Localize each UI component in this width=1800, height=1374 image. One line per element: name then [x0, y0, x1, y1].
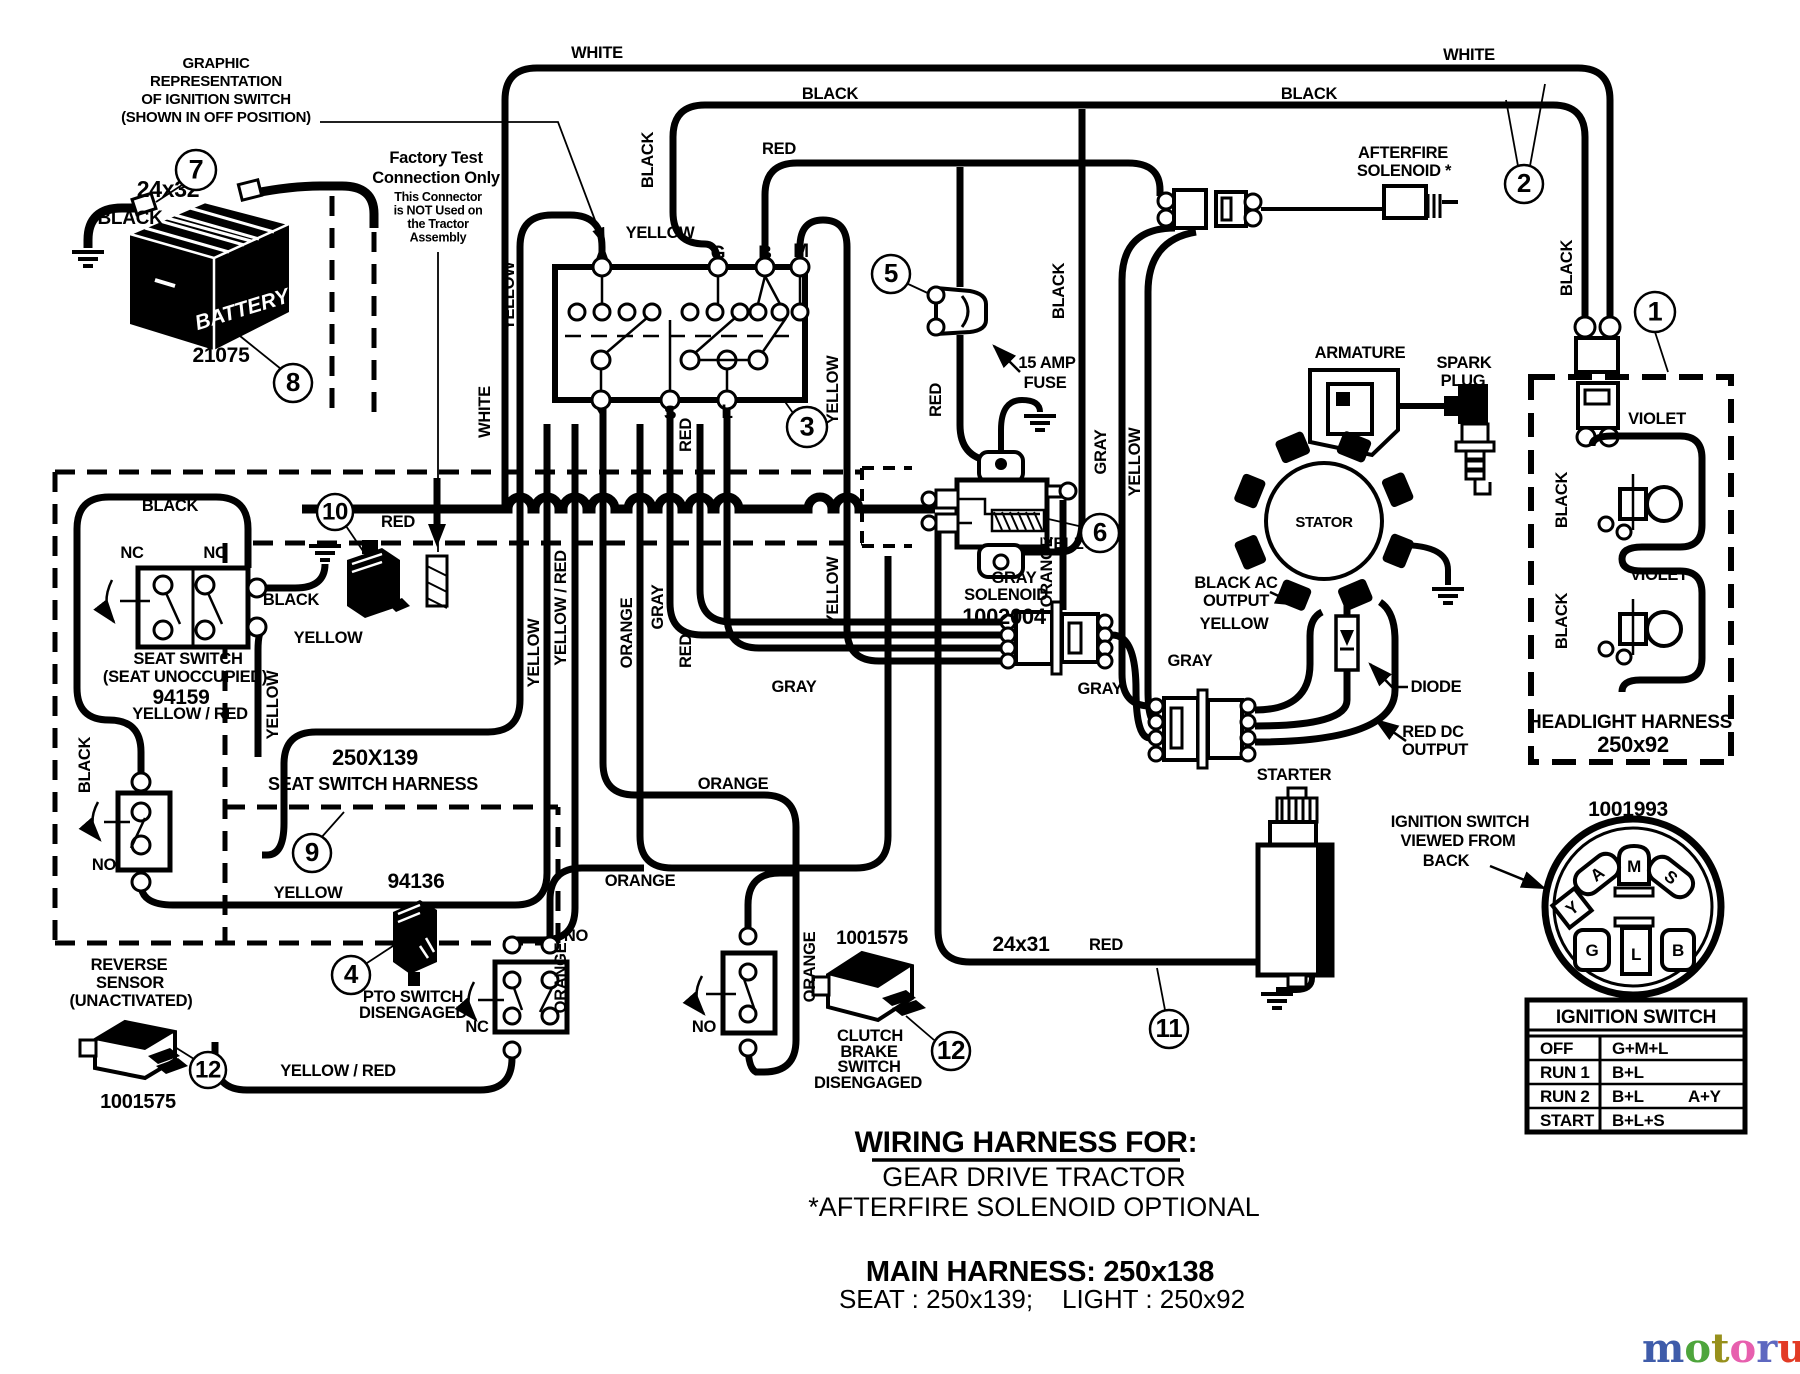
- graphic-rep-note: OF IGNITION SWITCH: [141, 91, 291, 108]
- seat-switch-shape: [196, 576, 214, 594]
- label-yellow-red: YELLOW / RED: [132, 705, 248, 723]
- callout4-pointer: [367, 944, 396, 963]
- factory-test-note: Connection Only: [372, 169, 501, 187]
- label-yellow: YELLOW: [294, 629, 364, 647]
- ignition-switch-schematic-shape: [682, 304, 698, 320]
- red-fuse-wire: [960, 335, 990, 461]
- callout1-pointer: [1655, 332, 1668, 372]
- fuse-arrow: [994, 346, 1020, 372]
- label-yellow: YELLOW: [525, 618, 543, 688]
- stator-shape-shape: [1276, 578, 1313, 611]
- label-starter: STARTER: [1257, 766, 1332, 784]
- ignition-switch-table: IGNITION SWITCH OFFG+M+LRUN 1B+LRUN 2B+L…: [1527, 1000, 1745, 1132]
- connector-b-shape: [1241, 715, 1255, 729]
- label-gray: GRAY: [1168, 652, 1213, 670]
- label-gray: GRAY: [1092, 429, 1110, 474]
- logo-motoruf-shape: o: [1730, 1325, 1757, 1372]
- clutch-brake-switch-shape: [740, 928, 756, 944]
- callout-8: 8: [274, 364, 312, 402]
- callout2-pointer: [1530, 84, 1545, 166]
- label-yellow: YELLOW: [1200, 615, 1270, 633]
- reverse-switch-shape: [132, 803, 150, 821]
- connector-b-shape: [1208, 700, 1242, 758]
- label-yellow: YELLOW: [824, 556, 842, 626]
- callout-2-shape: 2: [1517, 168, 1531, 198]
- callout-4: 4: [332, 956, 370, 994]
- starter-solenoid-shape: [936, 514, 958, 532]
- terminal-l: L: [1631, 945, 1641, 964]
- label-no: NO: [564, 927, 589, 945]
- headlight-harness: [1575, 317, 1702, 692]
- connector-a-shape: [1098, 654, 1112, 668]
- connector-b-shape: [1241, 747, 1255, 761]
- title-seat-light: SEAT : 250x139; LIGHT : 250x92: [839, 1284, 1245, 1314]
- pto-connector-cube-shape: [408, 972, 420, 986]
- yellow-wire: [262, 215, 602, 855]
- clutch-brake-switch: [696, 928, 775, 1056]
- clutch-brake-switch-shape: [696, 976, 704, 1014]
- stator-shape-shape: [1337, 578, 1374, 612]
- graphic-rep-note: (SHOWN IN OFF POSITION): [121, 109, 311, 126]
- headlight-harness-shape: [1585, 390, 1609, 404]
- logo-motoruf-shape: m: [1642, 1325, 1684, 1372]
- title-gear-drive: GEAR DRIVE TRACTOR: [882, 1162, 1186, 1192]
- logo-motoruf-shape: t: [1711, 1325, 1730, 1372]
- battery: BATTERY: [130, 180, 294, 350]
- label-nc: NC: [465, 1018, 489, 1036]
- pto-switch-shape: [504, 937, 520, 953]
- factory-test-connector: [427, 556, 447, 608]
- fuse-shape: [928, 287, 944, 303]
- label-seat-switch-harness: SEAT SWITCH HARNESS: [268, 774, 478, 794]
- starter-shape: [1270, 822, 1316, 845]
- ignition-switch-schematic-shape: [772, 304, 788, 320]
- ignition-switch-schematic-shape: [749, 351, 767, 369]
- connector-b-shape: [1171, 708, 1182, 748]
- table-terminals: B+L: [1612, 1063, 1644, 1082]
- afterfire-solenoid-shape: [1174, 190, 1206, 228]
- label-1001575: 1001575: [100, 1091, 176, 1113]
- label-s: S: [664, 403, 676, 424]
- starter-shape: [1288, 975, 1306, 987]
- seat-switch-shape: [154, 576, 172, 594]
- stator-shape-shape: [1233, 473, 1266, 510]
- label-red: RED: [677, 418, 695, 452]
- table-terminals: G+M+L: [1612, 1039, 1668, 1058]
- orange-clutch-wire: [748, 873, 796, 936]
- pto-switch-shape: [504, 972, 520, 988]
- label-yellow: YELLOW: [1126, 427, 1144, 497]
- label-yellow: YELLOW: [626, 224, 696, 242]
- wiring-diagram-page: BATTERY: [0, 0, 1800, 1374]
- label-black-ac: BLACK AC: [1194, 574, 1278, 592]
- callout-9-shape: 9: [305, 837, 319, 867]
- callout10-pointer: [346, 526, 363, 551]
- ignition-switch-back: M A S Y G L B: [1545, 819, 1721, 995]
- connector-a-shape: [1069, 623, 1081, 653]
- afterfire-solenoid-shape: [1158, 193, 1174, 209]
- callout-4-shape: 4: [344, 959, 359, 989]
- table-terminals-extra: A+Y: [1688, 1087, 1722, 1106]
- components-shape: [1024, 416, 1056, 430]
- seat-switch-shape: [154, 621, 172, 639]
- label-black: BLACK: [1553, 592, 1571, 649]
- callout-12: 12: [190, 1052, 226, 1088]
- factory-test-note: the Tractor: [407, 217, 469, 231]
- pto-switch-shape: [504, 1008, 520, 1024]
- table-terminals: B+L+S: [1612, 1111, 1664, 1130]
- label-250x92: 250x92: [1597, 732, 1669, 757]
- label-nc: NC: [203, 544, 227, 562]
- afterfire-solenoid: [1158, 186, 1458, 228]
- components: BATTERY: [72, 180, 1745, 1132]
- wiring-diagram-svg: BATTERY: [0, 0, 1800, 1374]
- reverse-switch-shape: [132, 873, 150, 891]
- spark-plug-shape: [1458, 384, 1488, 424]
- label-armature: ARMATURE: [1315, 344, 1406, 362]
- label-reverse: REVERSE: [91, 956, 168, 974]
- logo-motoruf-shape: o: [1684, 1325, 1711, 1372]
- callout-10: 10: [317, 494, 353, 530]
- factory-test-note: Factory Test: [389, 149, 483, 167]
- fuse-shape: [928, 319, 944, 335]
- label-orange: ORANGE: [618, 597, 636, 668]
- label-m: M: [793, 241, 809, 262]
- callout-1: 1: [1635, 292, 1675, 332]
- label-black: BLACK: [639, 131, 657, 188]
- label-headlight-harness: HEADLIGHT HARNESS: [1528, 712, 1732, 733]
- pto-connector-cube: [393, 900, 437, 986]
- factory-test-note: This Connector: [394, 190, 482, 204]
- stator-shape-shape: [1381, 533, 1414, 570]
- callout-7-shape: 7: [189, 154, 204, 184]
- callout-6: 6: [1081, 514, 1119, 552]
- callout-9: 9: [293, 834, 331, 872]
- label-viewed-from: VIEWED FROM: [1401, 832, 1516, 850]
- ignition-switch-schematic-shape: [792, 304, 808, 320]
- label-250x139: 250X139: [332, 745, 418, 770]
- spark-plug-shape: [1466, 471, 1484, 479]
- label-24x31: 24x31: [993, 933, 1051, 956]
- label-back: BACK: [1423, 852, 1470, 870]
- factory-test-note: Assembly: [410, 231, 467, 245]
- terminal-b: B: [1672, 941, 1684, 960]
- label-red: RED: [762, 140, 796, 158]
- afterfire-solenoid-shape: [1158, 210, 1174, 226]
- label-black: BLACK: [1281, 85, 1338, 103]
- logo: motoruf.de: [1642, 1325, 1800, 1372]
- label-orange: ORANGE: [605, 872, 676, 890]
- connector-b-shape: [1241, 731, 1255, 745]
- label-1001993: 1001993: [1588, 798, 1668, 821]
- diode-arrow: [1370, 664, 1408, 687]
- callout-8-shape: 8: [286, 367, 300, 397]
- callout-3: 3: [787, 407, 827, 447]
- spark-plug: [1444, 384, 1494, 494]
- logo-motoruf-shape: r: [1756, 1325, 1778, 1372]
- headlight-bulb-shape: [1647, 487, 1681, 521]
- ignition-switch-back-shape: [1615, 888, 1653, 896]
- label-white: WHITE: [1443, 46, 1495, 64]
- connector-b-shape: [1149, 715, 1163, 729]
- logo-motoruf: motoruf.de: [1642, 1325, 1800, 1372]
- main-harness-bus: [302, 497, 935, 509]
- headlight-harness-shape: [1576, 338, 1618, 372]
- label-y: Y: [595, 404, 608, 425]
- label-nc: NC: [120, 544, 144, 562]
- label-red-dc: RED DC: [1402, 723, 1464, 741]
- clutch-brake-sensor: [813, 953, 926, 1020]
- connector-b: [1149, 690, 1255, 768]
- callout9-pointer: [320, 812, 344, 839]
- label-yellow-red: YELLOW / RED: [280, 1062, 396, 1080]
- label-black: BLACK: [76, 736, 94, 793]
- black-wire: [673, 105, 1585, 318]
- armature-shape: [1336, 392, 1350, 406]
- connector-b-shape: [1149, 699, 1163, 713]
- label-red: RED: [677, 634, 695, 668]
- armature-shape: [1328, 384, 1372, 434]
- diode: [1336, 616, 1358, 670]
- starter-shape: [1277, 798, 1317, 822]
- label-no: NO: [692, 1018, 717, 1036]
- label-black: BLACK: [1553, 471, 1571, 528]
- relay-cube: [347, 540, 410, 618]
- label-gray: GRAY: [992, 569, 1037, 587]
- label-violet: VIOLET: [1630, 566, 1688, 584]
- callout-12: 12: [932, 1032, 970, 1070]
- yellow-drop-wire: [1148, 232, 1196, 722]
- label-b: B: [758, 243, 771, 264]
- label-15-amp: 15 AMP: [1018, 354, 1075, 372]
- terminal-g: G: [1586, 941, 1599, 960]
- starter-shape: [1316, 845, 1332, 975]
- ignition-switch-back-shape: [1615, 918, 1653, 926]
- graphic-rep-note: REPRESENTATION: [150, 73, 282, 90]
- spark-plug-shape: [1475, 479, 1490, 494]
- stator-shape-shape: [1381, 471, 1415, 508]
- label-g: G: [711, 243, 725, 264]
- label-black: BLACK: [802, 85, 859, 103]
- callout-3-shape: 3: [800, 411, 815, 441]
- starter-solenoid-shape: [922, 516, 936, 530]
- seat-switch: [106, 568, 266, 647]
- label-no: NO: [92, 856, 117, 874]
- solenoid-ground-wire: [1001, 400, 1040, 458]
- label--seat-unoccupied-: (SEAT UNOCCUPIED): [103, 668, 267, 686]
- pto-switch-shape: [468, 982, 476, 1020]
- table-position: RUN 1: [1540, 1063, 1590, 1082]
- connector-b-shape: [1241, 699, 1255, 713]
- seat-switch-shape: [106, 580, 114, 622]
- label-red: RED: [381, 513, 415, 531]
- table-position: OFF: [1540, 1039, 1573, 1058]
- reverse-switch-shape: [92, 802, 100, 840]
- clutch-brake-switch-shape: [740, 1040, 756, 1056]
- connector-b-shape: [1149, 731, 1163, 745]
- label-plug: PLUG: [1441, 372, 1486, 390]
- components-shape: [1261, 994, 1293, 1008]
- callout-2: 2: [1505, 165, 1543, 203]
- viewed-from-back-arrow: [1490, 866, 1544, 888]
- connector-b-shape: [1149, 747, 1163, 761]
- label-white: WHITE: [476, 386, 494, 438]
- label-1001575: 1001575: [836, 928, 909, 949]
- ignition-switch-schematic-shape: [569, 304, 585, 320]
- label-yellow-red: YELLOW / RED: [552, 550, 570, 666]
- afterfire-solenoid-shape: [1245, 194, 1261, 210]
- pto-switch-shape: [504, 1042, 520, 1058]
- components-shape: [309, 546, 341, 560]
- label-21075: 21075: [193, 344, 251, 367]
- label-spark: SPARK: [1436, 354, 1491, 372]
- ignition-switch-schematic-shape: [594, 304, 610, 320]
- black-seat-ground-wire: [266, 564, 325, 588]
- label-black: BLACK: [142, 497, 199, 515]
- label-gray: GRAY: [649, 584, 667, 629]
- callout12-pointer: [906, 1016, 934, 1040]
- callout-7: 7: [176, 150, 216, 190]
- starter-solenoid-shape: [936, 490, 958, 508]
- callout11-pointer: [1157, 968, 1165, 1010]
- reverse-sensor: [80, 1022, 188, 1078]
- label-94136: 94136: [388, 870, 445, 893]
- afterfire-solenoid-shape: [1245, 210, 1261, 226]
- spark-plug-shape: [1466, 461, 1484, 469]
- label-orange: ORANGE: [801, 931, 819, 1002]
- starter-solenoid-shape: [1060, 483, 1076, 499]
- pto-connector-cube-shape: [393, 900, 437, 974]
- ignition-switch-schematic-shape: [681, 351, 699, 369]
- callout-12-shape: 12: [937, 1035, 965, 1065]
- label-sensor: SENSOR: [96, 974, 164, 992]
- callout-10-shape: 10: [322, 499, 348, 526]
- graphic-rep-note: GRAPHIC: [182, 55, 250, 72]
- ignition-switch-schematic-shape: [750, 304, 766, 320]
- label-stator: STATOR: [1295, 514, 1353, 531]
- title-block: WIRING HARNESS FOR: GEAR DRIVE TRACTOR *…: [808, 1126, 1260, 1314]
- seat-switch-shape: [196, 621, 214, 639]
- callout-11: 11: [1150, 1010, 1188, 1048]
- ignition-switch-schematic: [555, 258, 809, 409]
- label-output: OUTPUT: [1402, 741, 1468, 759]
- ignition-switch-schematic-shape: [707, 304, 723, 320]
- label-orange: ORANGE: [552, 942, 570, 1013]
- table-title: IGNITION SWITCH: [1556, 1007, 1716, 1028]
- headlight-bulb-shape: [1617, 525, 1631, 539]
- label-black: BLACK: [1558, 239, 1576, 296]
- headlight-bulb: [1599, 474, 1681, 539]
- label-orange: ORANGE: [698, 775, 769, 793]
- headlight-bulb-shape: [1647, 612, 1681, 646]
- label-fuse: FUSE: [1024, 374, 1067, 392]
- label-yellow: YELLOW: [824, 355, 842, 425]
- components-shape: [72, 252, 104, 266]
- headlight-bulb-shape: [1617, 650, 1631, 664]
- reverse-sensor-shape: [80, 1040, 96, 1056]
- label-disengaged: DISENGAGED: [359, 1004, 467, 1022]
- label-black: BLACK: [98, 208, 164, 229]
- starter-solenoid-shape: [994, 555, 1008, 569]
- title-afterfire-note: *AFTERFIRE SOLENOID OPTIONAL: [808, 1192, 1260, 1222]
- afterfire-solenoid-shape: [1428, 194, 1440, 218]
- label-a: A: [595, 244, 609, 265]
- battery-shape: [238, 180, 261, 200]
- ignition-switch-schematic-shape: [555, 267, 805, 400]
- starter-solenoid-shape: [922, 492, 936, 506]
- afterfire-solenoid-shape: [1384, 186, 1426, 218]
- label-white: WHITE: [571, 44, 623, 62]
- reverse-switch-shape: [132, 773, 150, 791]
- label-diode: DIODE: [1411, 678, 1462, 696]
- label-seat-switch: SEAT SWITCH: [133, 650, 242, 668]
- callout-1-shape: 1: [1648, 296, 1663, 326]
- components-shape: [1432, 589, 1464, 603]
- logo-motoruf-shape: u: [1777, 1325, 1800, 1372]
- connector-a-shape: [1052, 602, 1061, 674]
- label-ignition-switch: IGNITION SWITCH: [1391, 813, 1530, 831]
- fuse: [928, 287, 986, 335]
- label-red: RED: [1089, 936, 1123, 954]
- starter: [1258, 788, 1332, 987]
- spark-plug-shape: [1462, 424, 1488, 442]
- stator-shape-shape: [1274, 430, 1311, 464]
- connector-a-shape: [1001, 654, 1015, 668]
- clutch-brake-switch-shape: [740, 1006, 756, 1022]
- label-disengaged: DISENGAGED: [814, 1074, 922, 1092]
- label-solenoid-: SOLENOID *: [1357, 162, 1452, 180]
- ignition-switch-schematic-shape: [619, 304, 635, 320]
- callout-5-shape: 5: [884, 258, 898, 288]
- label-violet: VIOLET: [1628, 410, 1686, 428]
- callout-12-shape: 12: [195, 1057, 221, 1084]
- callout-11-shape: 11: [1156, 1013, 1183, 1043]
- label-1002004: 1002004: [962, 604, 1047, 629]
- label--unactivated-: (UNACTIVATED): [70, 992, 193, 1010]
- headlight-harness-shape: [1575, 317, 1595, 337]
- afterfire-solenoid-shape: [1222, 198, 1231, 220]
- label-red: RED: [927, 383, 945, 417]
- table-terminals: B+L: [1612, 1087, 1644, 1106]
- title-wiring-harness: WIRING HARNESS FOR:: [855, 1126, 1198, 1159]
- seat-switch-shape: [248, 618, 266, 636]
- ignition-switch-schematic-shape: [592, 351, 610, 369]
- label-yellow: YELLOW: [274, 884, 344, 902]
- label-black: BLACK: [1050, 262, 1068, 319]
- factory-test-note: is NOT Used on: [394, 204, 483, 218]
- label-yellow: YELLOW: [500, 261, 518, 331]
- connector-b-shape: [1198, 690, 1207, 768]
- label-gray: GRAY: [772, 678, 817, 696]
- headlight-bulb: [1599, 599, 1681, 664]
- label-l: L: [721, 402, 733, 423]
- label-gray: GRAY: [1078, 680, 1123, 698]
- relay-cube-shape: [362, 540, 378, 554]
- callout2-pointer: [1506, 100, 1518, 166]
- starter-solenoid-shape: [995, 458, 1007, 470]
- spark-plug-shape: [1466, 451, 1484, 459]
- stator-shape-shape: [1233, 534, 1267, 571]
- table-position: START: [1540, 1111, 1595, 1130]
- headlight-bulb-shape: [1599, 517, 1613, 531]
- headlight-bulb-shape: [1599, 642, 1613, 656]
- terminal-m: M: [1627, 857, 1641, 876]
- label-afterfire: AFTERFIRE: [1358, 144, 1448, 162]
- clutch-brake-switch-shape: [740, 964, 756, 980]
- table-position: RUN 2: [1540, 1087, 1590, 1106]
- label-black: BLACK: [263, 591, 320, 609]
- callout-5: 5: [872, 255, 910, 293]
